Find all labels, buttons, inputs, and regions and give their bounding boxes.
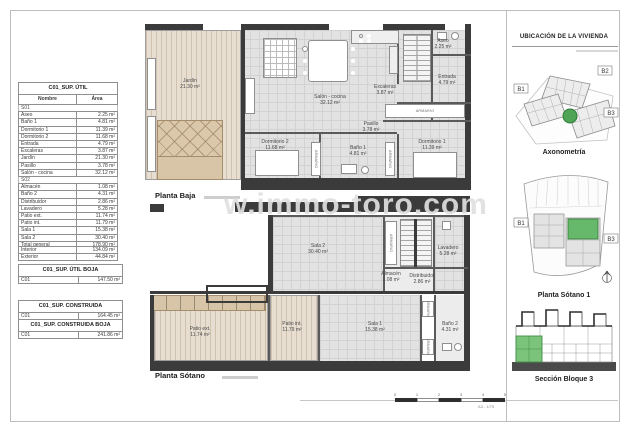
partition xyxy=(383,267,468,269)
table-title: C01_SUP. ÚTIL xyxy=(19,83,118,95)
group-row: S02 xyxy=(19,177,118,184)
room-label: Distribuidor2.86 m² xyxy=(409,273,434,285)
room-label: Baño 14.81 m² xyxy=(350,145,367,157)
toilet xyxy=(454,343,462,351)
scale-note: A3 - 1/75 xyxy=(478,404,494,409)
toilet xyxy=(451,32,459,40)
subtitle-bar xyxy=(576,50,618,52)
room-label: Dormitorio 211.68 m² xyxy=(261,139,288,151)
table-row: C01147.50 m² xyxy=(19,277,123,284)
room-label: Dormitorio 111.39 m² xyxy=(418,139,445,151)
partition xyxy=(268,295,270,361)
table-row: Aseo2.25 m² xyxy=(19,112,118,119)
partition xyxy=(434,295,436,361)
floor-plan-planta-baja: ARMARIO ARMARIO ARMARIO Jardín21.30 m² S… xyxy=(145,24,471,190)
partition xyxy=(397,134,399,178)
wardrobe-label: ARMARIO xyxy=(385,104,465,118)
table-row: C01241.86 m² xyxy=(19,332,123,339)
axonometric-diagram: B1 B2 B3 xyxy=(510,56,620,148)
table-row: Dormitorio 211.68 m² xyxy=(19,133,118,140)
skylight-grid xyxy=(263,38,297,78)
table-row: Escaleras3.87 m² xyxy=(19,148,118,155)
terrace-zone xyxy=(157,156,223,180)
table-row: Exterior44.84 m² xyxy=(19,254,118,261)
svg-text:B2: B2 xyxy=(601,69,609,75)
table-row: Sala 115.38 m² xyxy=(19,227,118,234)
stair-rail xyxy=(414,219,417,267)
table-row: Sala 230.40 m² xyxy=(19,234,118,241)
partition xyxy=(318,295,320,361)
watermark: w.immo-toro.com xyxy=(224,188,488,222)
wardrobe-label: ARMARIO xyxy=(422,339,434,355)
svg-text:B3: B3 xyxy=(607,111,615,117)
axonometria-label: Axonometría xyxy=(508,149,620,156)
table-row: Almacén1.08 m² xyxy=(19,184,118,191)
block-label-b1: B1 xyxy=(514,218,528,227)
stove-burners xyxy=(359,34,363,38)
wardrobe-label: ARMARIO xyxy=(385,142,395,176)
unit-highlight xyxy=(563,109,577,123)
table-row: Salón - cocina32.12 m² xyxy=(19,169,118,176)
table-row: Lavadero5.28 m² xyxy=(19,205,118,212)
room-label: Sala 115.38 m² xyxy=(365,321,385,333)
table-row: Entrada4.79 m² xyxy=(19,141,118,148)
dining-table xyxy=(308,40,348,82)
seccion-bloque3-label: Sección Bloque 3 xyxy=(508,376,620,383)
table-row: Interior134.09 m² xyxy=(19,247,118,254)
sidebar-title: UBICACIÓN DE LA VIVIENDA xyxy=(508,34,620,40)
unit-highlight xyxy=(568,219,598,239)
plan-subtitle-bar xyxy=(222,376,258,379)
room-label: Almacén1.08 m² xyxy=(381,271,400,283)
partition xyxy=(383,120,471,122)
wall-segment xyxy=(150,361,470,371)
block-label-b3: B3 xyxy=(604,234,618,243)
table-row: Patio ext.11.74 m² xyxy=(19,213,118,220)
surface-table-util: C01_SUP. ÚTIL Nombre Área S01 Aseo2.25 m… xyxy=(18,82,118,249)
room-label: Jardín21.30 m² xyxy=(180,78,200,90)
kitchen-counter xyxy=(351,30,399,44)
pergola-zone xyxy=(157,120,223,158)
room-label: Salón - cocina32.12 m² xyxy=(314,94,346,106)
bath-fixture xyxy=(442,343,452,351)
plan-title-baja: Planta Baja xyxy=(155,191,195,200)
wall-segment xyxy=(241,24,329,30)
plan-title-sotano: Planta Sótano xyxy=(155,371,205,380)
patio-structure xyxy=(206,285,268,303)
scale-bar: 0 1 2 3 4 5 A3 - 1/75 xyxy=(300,390,620,410)
basement-key-plan: B1 B3 xyxy=(510,162,620,290)
room-label: Baño 24.31 m² xyxy=(442,321,459,333)
wall-segment xyxy=(150,295,154,365)
wall-segment xyxy=(268,215,273,293)
dining-chairs xyxy=(302,46,308,52)
north-arrow xyxy=(603,271,612,283)
svg-text:B1: B1 xyxy=(517,221,525,227)
table-row: Dormitorio 111.39 m² xyxy=(19,126,118,133)
block-label-b3: B3 xyxy=(604,108,618,117)
room-label: Patio ext.11.74 m² xyxy=(190,326,211,338)
planter xyxy=(147,58,156,110)
block-label-b1: B1 xyxy=(514,84,528,93)
floor-plan-planta-sotano: ARMARIO ARMARIO ARMARIO Sala 230.40 m² A… xyxy=(150,215,470,370)
wall-segment xyxy=(465,24,471,184)
table-row: Baño 24.31 m² xyxy=(19,191,118,198)
table-row: Jardín21.30 m² xyxy=(19,155,118,162)
svg-text:B1: B1 xyxy=(517,87,525,93)
bed xyxy=(255,150,299,176)
surface-table-construida: C01_SUP. CONSTRUIDA C01164.45 m² C01_SUP… xyxy=(18,300,123,339)
table-row: Pasillo3.78 m² xyxy=(19,162,118,169)
table-row: Patio int.11.79 m² xyxy=(19,220,118,227)
wardrobe-label: ARMARIO xyxy=(422,301,434,317)
interior-exterior-table: Interior134.09 m² Exterior44.84 m² xyxy=(18,246,118,261)
room-label: Aseo2.25 m² xyxy=(435,38,452,50)
group-row: S01 xyxy=(19,105,118,112)
planter xyxy=(147,116,156,172)
table-row: C01164.45 m² xyxy=(19,313,123,320)
table-row: Distribuidor2.86 m² xyxy=(19,198,118,205)
wall-segment xyxy=(150,204,164,212)
wall-segment xyxy=(145,24,203,30)
washer xyxy=(442,221,451,230)
room-label: Pasillo3.78 m² xyxy=(363,121,380,133)
bath-fixture xyxy=(341,164,357,174)
title-rule xyxy=(512,46,618,47)
svg-text:B3: B3 xyxy=(607,237,615,243)
wall-segment xyxy=(150,291,468,294)
surface-table-util-boja: C01_SUP. ÚTIL BOJA C01147.50 m² xyxy=(18,264,123,284)
sidebar-divider xyxy=(506,10,507,422)
table-row: Baño 14.81 m² xyxy=(19,119,118,126)
wardrobe-label: ARMARIO xyxy=(311,142,321,176)
room-label: Sala 230.40 m² xyxy=(308,243,328,255)
block-label-b2: B2 xyxy=(598,66,612,75)
kitchen-counter xyxy=(389,46,398,74)
sofa xyxy=(245,78,255,114)
toilet xyxy=(361,166,369,174)
room-label: Patio int.11.79 m² xyxy=(282,321,301,333)
section-diagram xyxy=(510,306,620,376)
room-label: Entrada4.79 m² xyxy=(438,74,456,86)
room-label: Lavadero5.28 m² xyxy=(438,245,459,257)
bed xyxy=(413,152,457,178)
partition xyxy=(431,54,471,56)
planta-sotano1-label: Planta Sótano 1 xyxy=(508,292,620,299)
wardrobe-label: ARMARIO xyxy=(385,221,397,265)
staircase xyxy=(403,34,431,82)
room-label: Escaleras3.87 m² xyxy=(374,84,396,96)
